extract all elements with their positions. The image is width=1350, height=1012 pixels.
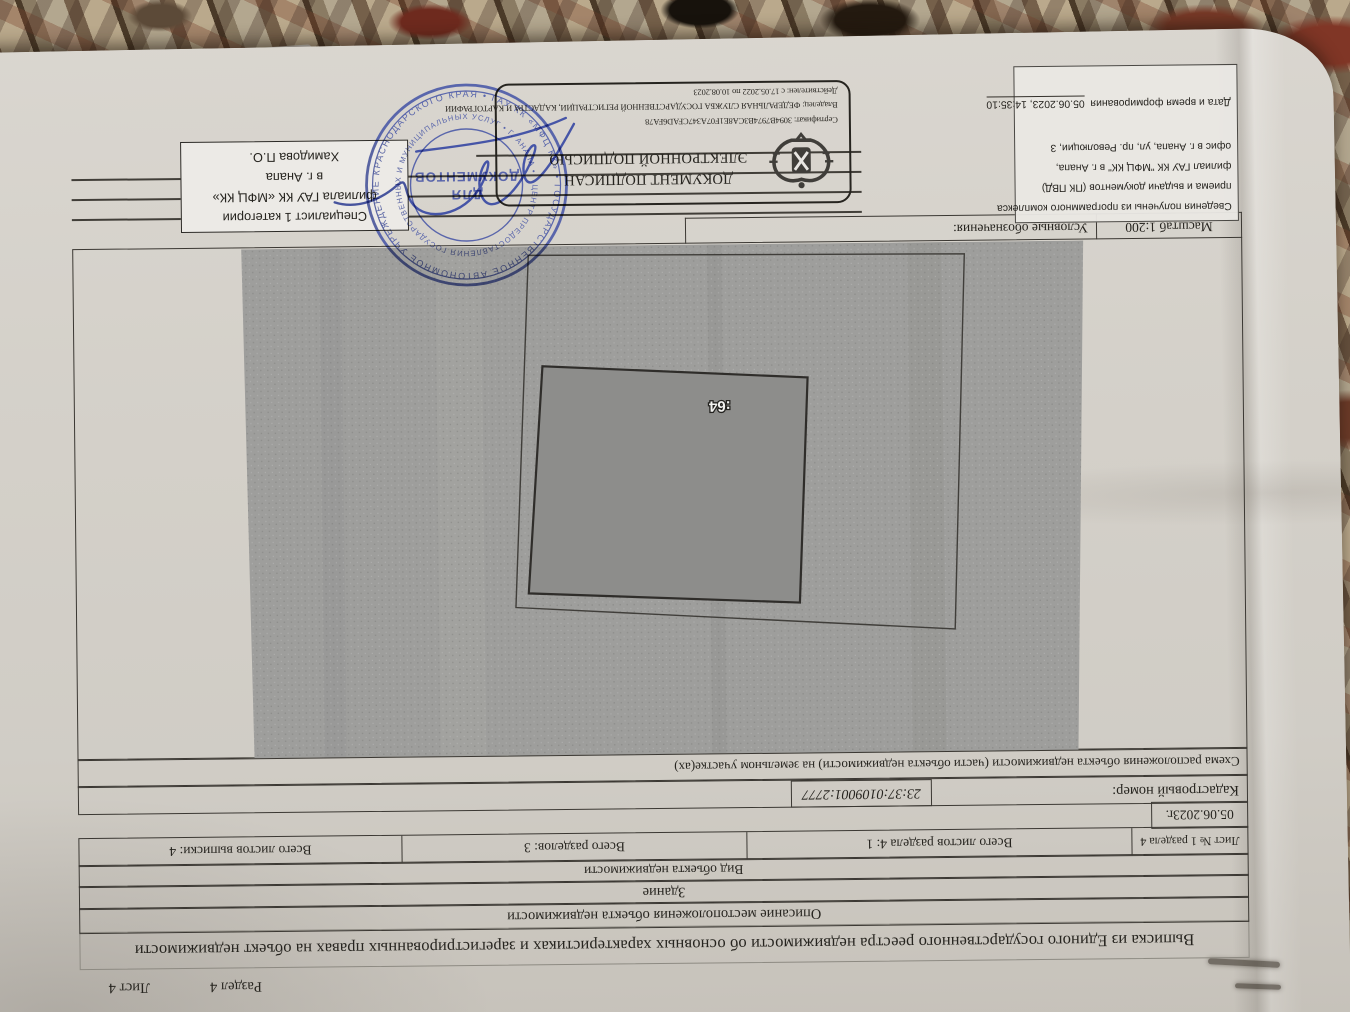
extract-date: 05.06.2023г.: [1151, 801, 1248, 829]
photo-of-document: Раздел 4 Лист 4 Выписка из Единого госуд…: [0, 0, 1350, 1012]
source-info-line: филиал ГАУ КК "МФЦ КК" в г. Анапа,: [1015, 155, 1231, 177]
cadastral-label: Кадастровый номер:: [1112, 781, 1239, 799]
scheme-map-frame: :64: [72, 237, 1247, 761]
sheet-info-cell: Всего листов выписки: 4: [79, 836, 402, 866]
source-info-line: Сведения получены из программного компле…: [1016, 195, 1232, 217]
scheme-map: :64: [74, 239, 1246, 760]
source-info-box: Сведения получены из программного компле…: [1013, 64, 1239, 223]
sheet-info-cell: Лист № 1 раздела 4: [1132, 827, 1247, 855]
generation-datetime-value: 05.06.2023, 14:35:10: [986, 96, 1084, 110]
handwritten-signature: [316, 101, 587, 239]
generation-datetime: Дата и время формирования 05.06.2023, 14…: [1015, 91, 1231, 113]
section-number: Раздел 4: [210, 977, 262, 995]
building-footprint: [526, 363, 809, 605]
source-info-line: офис в г. Анапа, ул, пр. Революции, 3: [1015, 135, 1231, 157]
rosreestr-eagle-icon: [765, 129, 838, 194]
sheet-info-cell: Всего разделов: 3: [402, 832, 747, 863]
sheet-number: Лист 4: [109, 978, 150, 995]
source-info-line: приема и выдачи документов (ПК ПВД): [1015, 175, 1231, 197]
parcel-label: :64: [708, 397, 731, 414]
egrn-extract-page: Раздел 4 Лист 4 Выписка из Единого госуд…: [70, 34, 1250, 996]
cadastral-value: 23:37:0109001:2777: [791, 779, 932, 807]
sheet-info-cell: Всего листов раздела 4: 1: [747, 828, 1132, 859]
